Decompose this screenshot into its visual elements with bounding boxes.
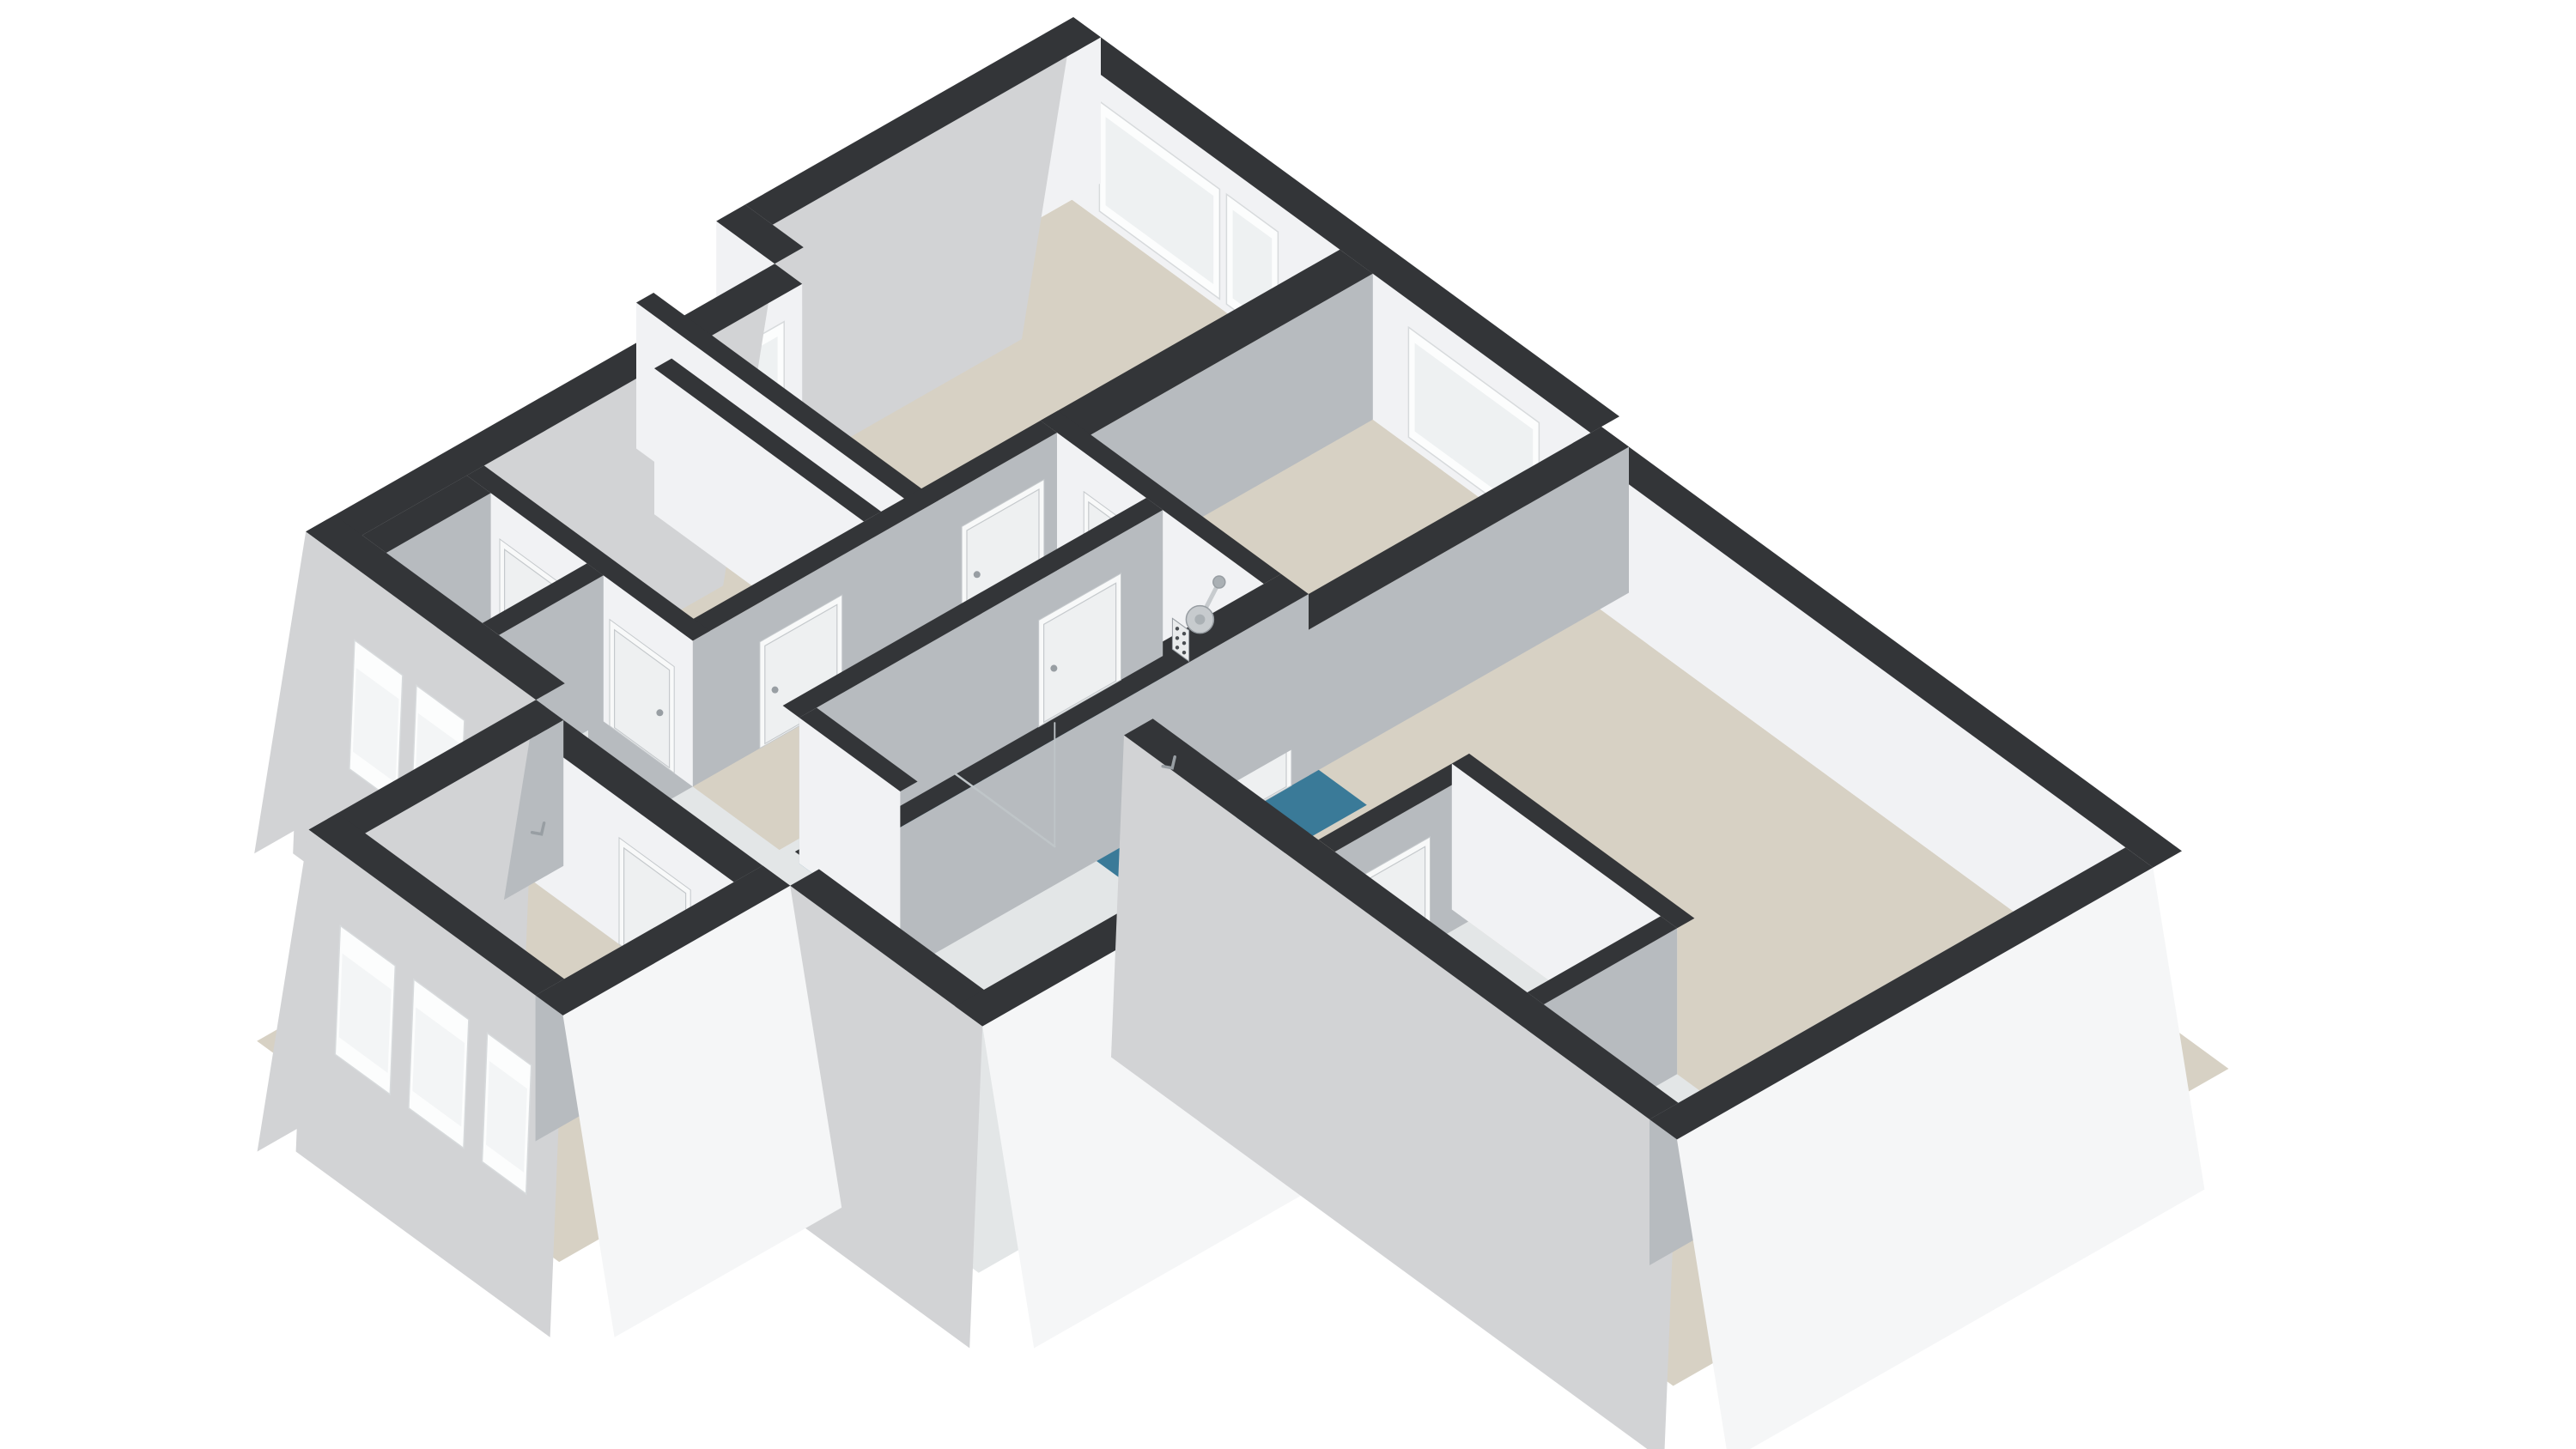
door-handle-wall-spine-1 [772,687,779,694]
shower-head-center [1194,615,1205,625]
shower-control-dot [1176,636,1179,640]
shower-control-dot [1182,632,1186,635]
shower-escutcheon [1213,576,1225,588]
door-handle-wall-bath-w-0 [1050,665,1057,672]
floorplan-stage [0,0,2576,1449]
shower-control-dot [1176,627,1179,630]
shower-control-dot [1182,641,1186,645]
door-handle-wall-spine-0 [974,571,981,578]
shower-control-dot [1176,646,1179,649]
shower-control-dot [1182,651,1186,654]
door-handle-wall-b2-south-1 [656,709,663,716]
floorplan-3d-render [0,0,2576,1449]
